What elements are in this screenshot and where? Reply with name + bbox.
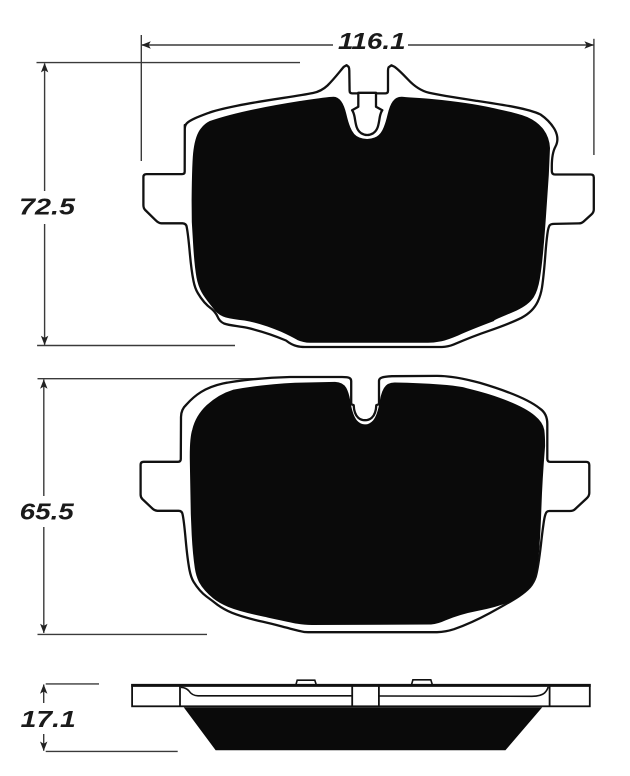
svg-text:72.5: 72.5 [19,193,76,220]
svg-text:116.1: 116.1 [338,29,406,54]
svg-text:17.1: 17.1 [21,707,76,732]
svg-text:65.5: 65.5 [20,500,75,525]
